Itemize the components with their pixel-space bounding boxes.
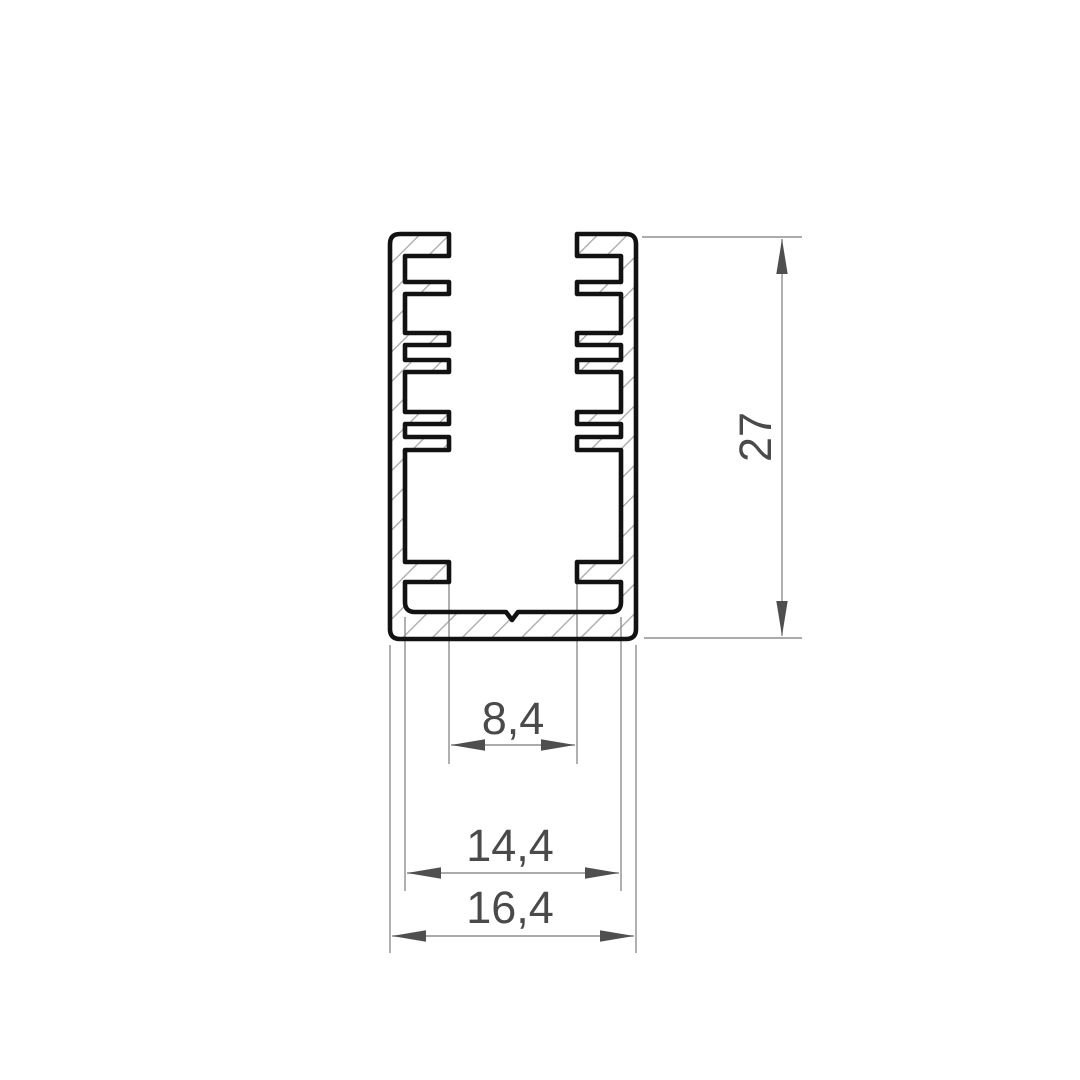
dimension-value-height: 27 <box>730 412 781 462</box>
dimension-value-fin-tip-gap: 8,4 <box>482 693 545 744</box>
dimension-arrow-right <box>541 739 575 750</box>
dimension-outer-width: 16,4 <box>390 645 636 953</box>
dimension-arrow-right <box>600 930 634 941</box>
dimension-height: 27 <box>642 237 802 638</box>
dimension-arrow-up <box>776 239 787 274</box>
dimension-arrow-down <box>776 601 787 636</box>
dimension-arrow-left <box>451 739 485 750</box>
dimension-inner-width: 14,4 <box>405 617 621 891</box>
dimension-value-inner-width: 14,4 <box>466 820 554 871</box>
dimension-arrow-left <box>407 867 441 878</box>
dimension-arrow-right <box>585 867 619 878</box>
dimension-arrow-left <box>392 930 426 941</box>
dimension-value-outer-width: 16,4 <box>466 882 554 933</box>
technical-drawing-canvas: 27 8,4 14,4 16,4 <box>0 0 1080 1080</box>
drawing-page: 27 8,4 14,4 16,4 <box>0 0 1080 1080</box>
